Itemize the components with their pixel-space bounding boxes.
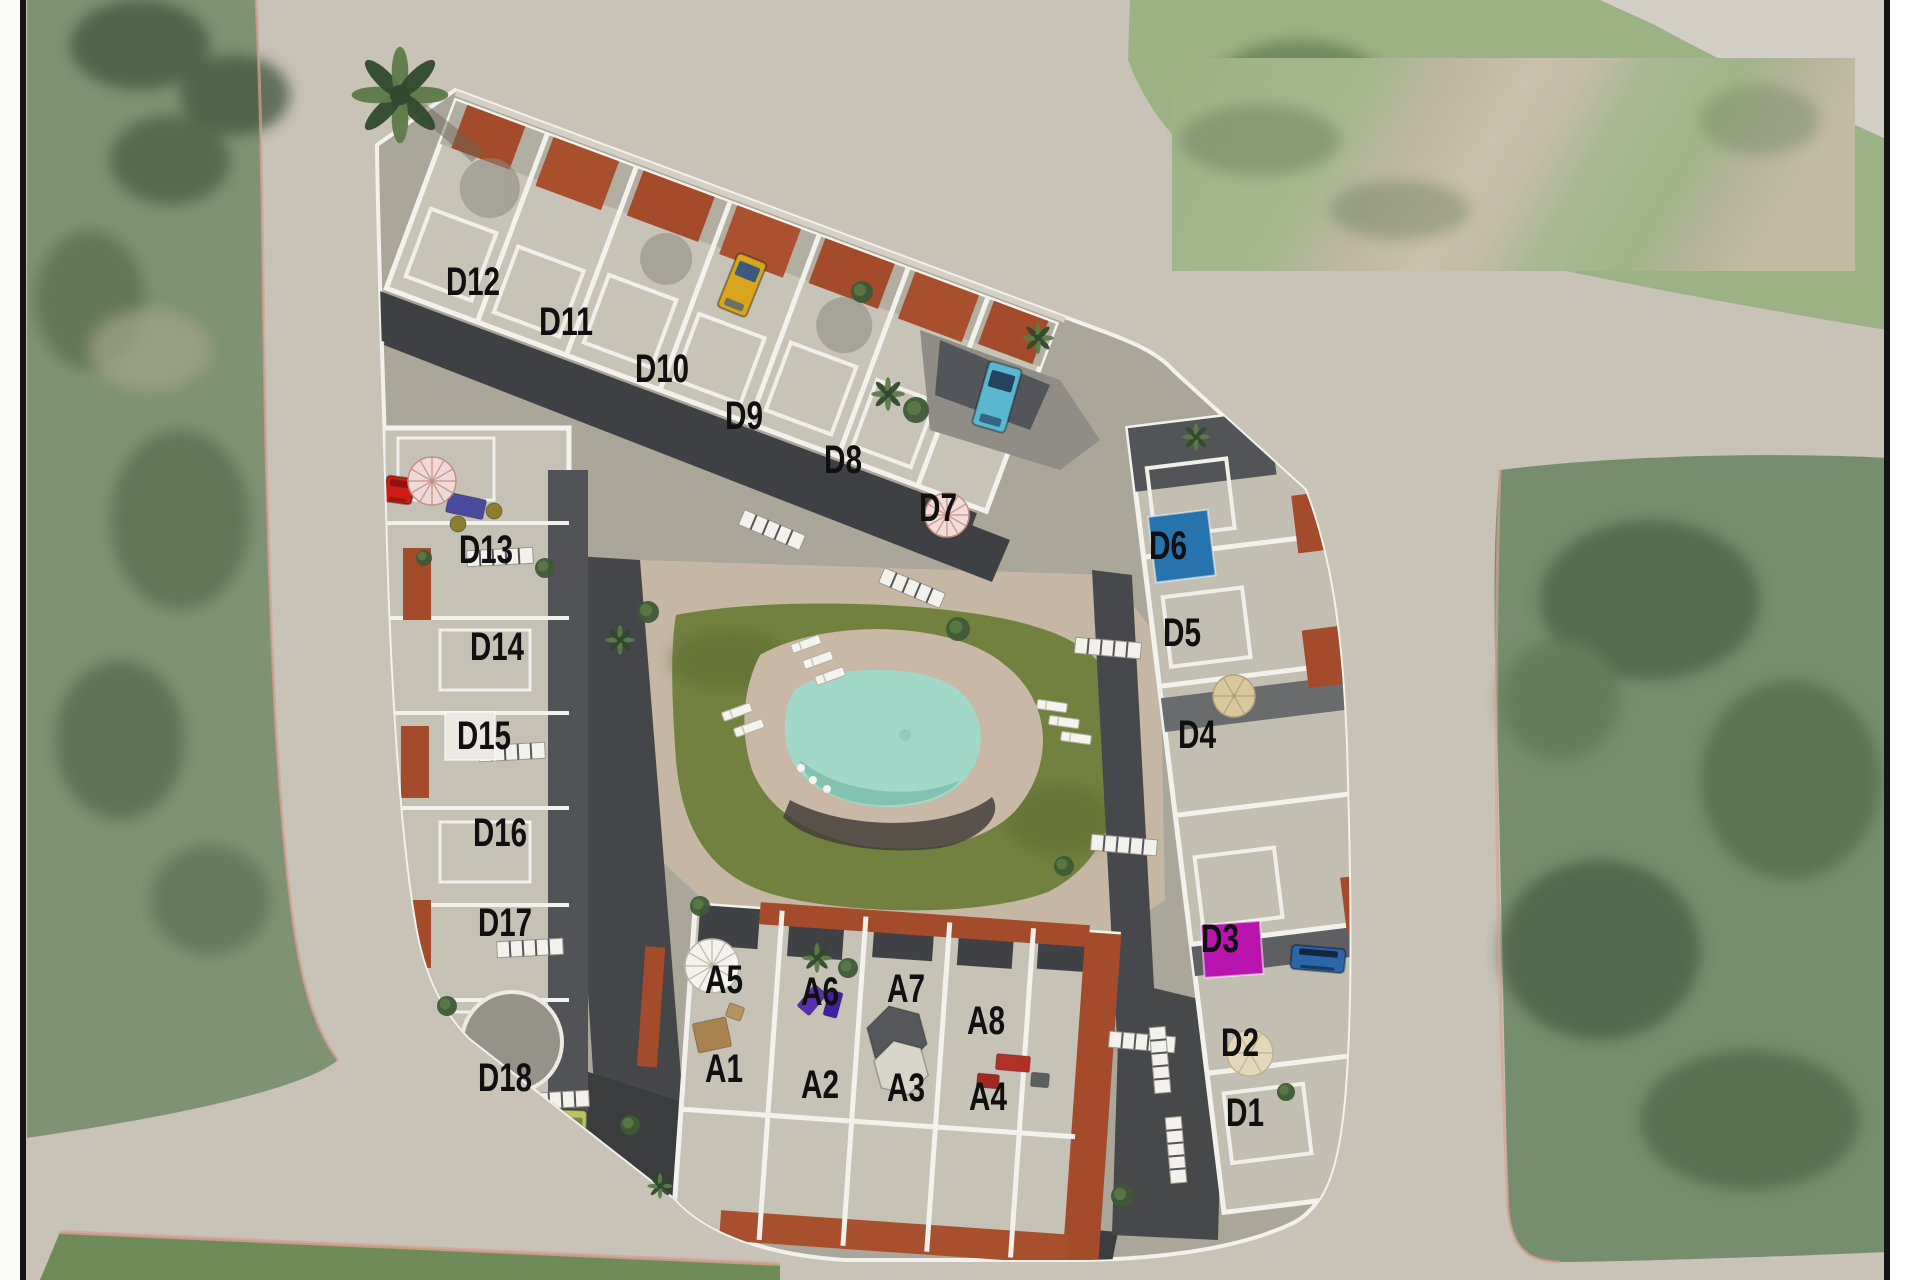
building-label-d4: D4 <box>1178 713 1217 757</box>
building-label-a5: A5 <box>705 958 743 1002</box>
palm-tree <box>647 1173 672 1198</box>
bush <box>946 617 970 641</box>
courtyard <box>620 560 1165 950</box>
building-label-a4: A4 <box>969 1075 1008 1119</box>
palm-tree <box>1022 322 1054 354</box>
bush <box>851 281 873 303</box>
bush <box>838 958 858 978</box>
building-label-d10: D10 <box>635 347 689 391</box>
building-label-d1: D1 <box>1226 1091 1264 1135</box>
building-label-a3: A3 <box>887 1066 925 1110</box>
building-label-d3: D3 <box>1201 917 1239 961</box>
building-label-a1: A1 <box>705 1047 743 1091</box>
site-plan-canvas: D12D11D10D9D8D7D13D14D15D16D17D18D6D5D4D… <box>0 0 1920 1280</box>
palm-tree <box>605 625 634 654</box>
round-table <box>486 503 502 519</box>
field-right <box>1495 455 1889 1262</box>
site-plan-screenshot: D12D11D10D9D8D7D13D14D15D16D17D18D6D5D4D… <box>0 0 1920 1280</box>
blue-pickup <box>1290 945 1346 974</box>
red-table-a4 <box>995 1054 1030 1073</box>
building-label-d14: D14 <box>470 625 525 669</box>
bush <box>437 996 457 1016</box>
building-label-d7: D7 <box>919 486 957 530</box>
building-label-a8: A8 <box>967 999 1005 1043</box>
building-label-d15: D15 <box>457 714 511 758</box>
pool-swimmer <box>899 729 911 741</box>
building-label-d18: D18 <box>478 1056 532 1100</box>
building-label-d8: D8 <box>824 438 862 482</box>
building-label-d9: D9 <box>725 394 763 438</box>
building-label-a2: A2 <box>801 1063 839 1107</box>
building-label-d12: D12 <box>446 260 500 304</box>
beige-umbrella-d4 <box>1213 675 1255 717</box>
building-label-d13: D13 <box>459 528 513 572</box>
building-label-d11: D11 <box>539 300 593 344</box>
bush <box>416 550 432 566</box>
building-label-d17: D17 <box>478 901 532 945</box>
bush <box>1111 1185 1133 1207</box>
building-label-d16: D16 <box>473 811 527 855</box>
bush <box>903 397 929 423</box>
palm-tree <box>871 377 905 411</box>
pink-umbrella-d13 <box>408 457 456 505</box>
bush <box>637 601 659 623</box>
bush <box>1054 856 1074 876</box>
building-label-a7: A7 <box>887 967 925 1011</box>
gray-grill-a4 <box>1030 1072 1049 1088</box>
bush <box>690 896 710 916</box>
bush <box>620 1115 640 1135</box>
building-label-d5: D5 <box>1163 611 1201 655</box>
building-label-d2: D2 <box>1221 1021 1259 1065</box>
building-label-a6: A6 <box>801 970 839 1014</box>
building-label-d6: D6 <box>1149 524 1187 568</box>
palm-tree <box>802 943 831 972</box>
pasted-aerial-patch <box>1172 58 1855 271</box>
palm-tree <box>1182 423 1209 450</box>
bush <box>1277 1083 1295 1101</box>
bush <box>535 558 555 578</box>
palm-tree <box>352 47 449 144</box>
